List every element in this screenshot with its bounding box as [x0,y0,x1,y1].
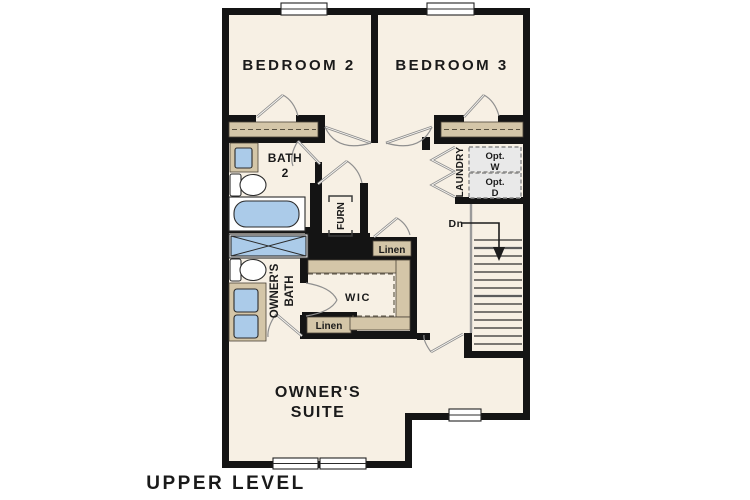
laundry-label: LAUNDRY [455,147,466,198]
opt-washer-label-line2: W [491,162,500,173]
bath2-sink [235,148,252,168]
lower-linen-label: Linen [316,321,343,332]
opt-washer-label-line1: Opt. [486,151,505,162]
stairs-down-label: Dn [449,218,464,230]
furnace-label: FURN [336,202,347,230]
bathtub [234,201,299,227]
opt-dryer-label-line1: Opt. [486,177,505,188]
owners-bath-label-line1: OWNER'S [269,263,281,318]
vanity-sink-1 [234,289,258,312]
upper-linen-label: Linen [379,245,406,256]
opt-dryer-label-line2: D [492,188,499,199]
upper-level-floor-plan: BEDROOM 2 BEDROOM 3 BATH 2 LAUNDRY Opt. … [0,0,750,500]
bedroom3-label: BEDROOM 3 [395,57,508,74]
vanity-sink-2 [234,315,258,338]
bath2-label-line1: BATH [268,151,302,165]
owners-bath-label-line2: BATH [284,275,296,306]
owners-toilet-tank [230,259,241,281]
owners-suite-label-line1: OWNER'S [275,384,361,401]
owners-suite-label-line2: SUITE [291,404,346,421]
owners-toilet-bowl [240,260,266,281]
bath2-toilet-bowl [240,175,266,196]
wic-label: WIC [345,292,371,304]
bath2-label-line2: 2 [282,166,289,180]
page-title: UPPER LEVEL [146,473,305,494]
bath2-toilet-tank [230,174,241,196]
floor-plan-canvas: BEDROOM 2 BEDROOM 3 BATH 2 LAUNDRY Opt. … [0,0,750,500]
bedroom2-label: BEDROOM 2 [242,57,355,74]
